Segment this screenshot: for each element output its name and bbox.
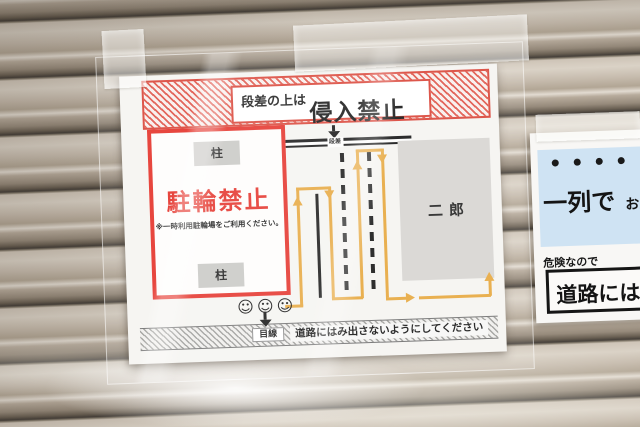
- lane-divider-dashed-2: [367, 152, 376, 292]
- queue-path-entry-stub: [488, 280, 491, 296]
- queue-arrow-up-icon: [352, 160, 362, 169]
- queue-path-down-2: [381, 149, 389, 298]
- queue-path-top-2: [356, 148, 384, 151]
- no-entry-title: 侵入禁止: [309, 91, 406, 128]
- step-bar-label: 段差: [327, 137, 343, 148]
- no-entry-banner: 段差の上は 侵入禁止: [141, 69, 490, 130]
- dot-icon: [574, 159, 581, 166]
- shop-box: 二郎: [398, 138, 495, 281]
- road-warning-text: 道路にはみ出さないようにしてください: [290, 320, 489, 342]
- road-warning-strip: 道路にはみ出さないようにしてください: [140, 316, 499, 351]
- queue-path-top-1: [296, 186, 330, 190]
- lane-divider-solid: [315, 194, 322, 298]
- queue-arrow-right-icon: [406, 292, 415, 302]
- line-up-headline: 一列で お並: [542, 180, 640, 219]
- queue-arrow-down-icon: [324, 190, 334, 199]
- road-boxed-text: 道路には: [556, 277, 640, 310]
- queue-arrow-up-icon: [292, 196, 302, 205]
- pillar-bottom-label: 柱: [198, 262, 245, 288]
- dot-icon: [552, 159, 559, 166]
- dot-icon: [618, 157, 625, 164]
- queue-dots-icon: [552, 157, 625, 167]
- photo-of-signs-on-shutter: 段差の上は 侵入禁止 段差 柱 駐輪禁止 ※一時利用駐輪場をご利用ください。 柱…: [0, 0, 640, 427]
- queue-path-down-1: [328, 186, 334, 299]
- step-prefix-text: 段差の上は: [241, 89, 307, 110]
- main-sign: 段差の上は 侵入禁止 段差 柱 駐輪禁止 ※一時利用駐輪場をご利用ください。 柱…: [119, 63, 507, 364]
- eye-line-label: 目線: [252, 327, 284, 342]
- eye-line-arrow-icon: [263, 312, 266, 320]
- shop-label: 二郎: [422, 198, 471, 221]
- no-entry-label-box: 段差の上は 侵入禁止: [230, 79, 431, 124]
- pillar-top-label: 柱: [193, 141, 240, 167]
- queue-path-bottom-2: [386, 297, 406, 300]
- right-sign: 一列で お並 危険なので 道路には: [530, 129, 640, 323]
- queue-arrow-down-icon: [377, 154, 387, 163]
- queue-arrow-up-icon: [484, 272, 494, 281]
- no-parking-box: 柱 駐輪禁止 ※一時利用駐輪場をご利用ください。 柱: [147, 125, 291, 300]
- right-sign-blue-header: 一列で お並: [537, 146, 640, 247]
- queue-path-up-2: [356, 149, 364, 298]
- queue-path-bottom-1: [332, 296, 363, 300]
- dot-icon: [596, 158, 603, 165]
- smiley-faces-icon: ☺☺☺: [237, 297, 297, 317]
- step-bar: 段差: [283, 136, 411, 148]
- line-up-small-text: お並: [625, 196, 640, 213]
- queue-path-bottom-3: [419, 294, 491, 299]
- road-boxed-warning: 道路には: [545, 265, 640, 314]
- line-up-large-text: 一列で: [543, 187, 616, 217]
- down-arrow-icon: [332, 125, 335, 131]
- no-parking-note: ※一時利用駐輪場をご利用ください。: [154, 217, 284, 233]
- no-parking-title: 駐輪禁止: [153, 179, 284, 219]
- lane-divider-dashed-1: [340, 153, 349, 293]
